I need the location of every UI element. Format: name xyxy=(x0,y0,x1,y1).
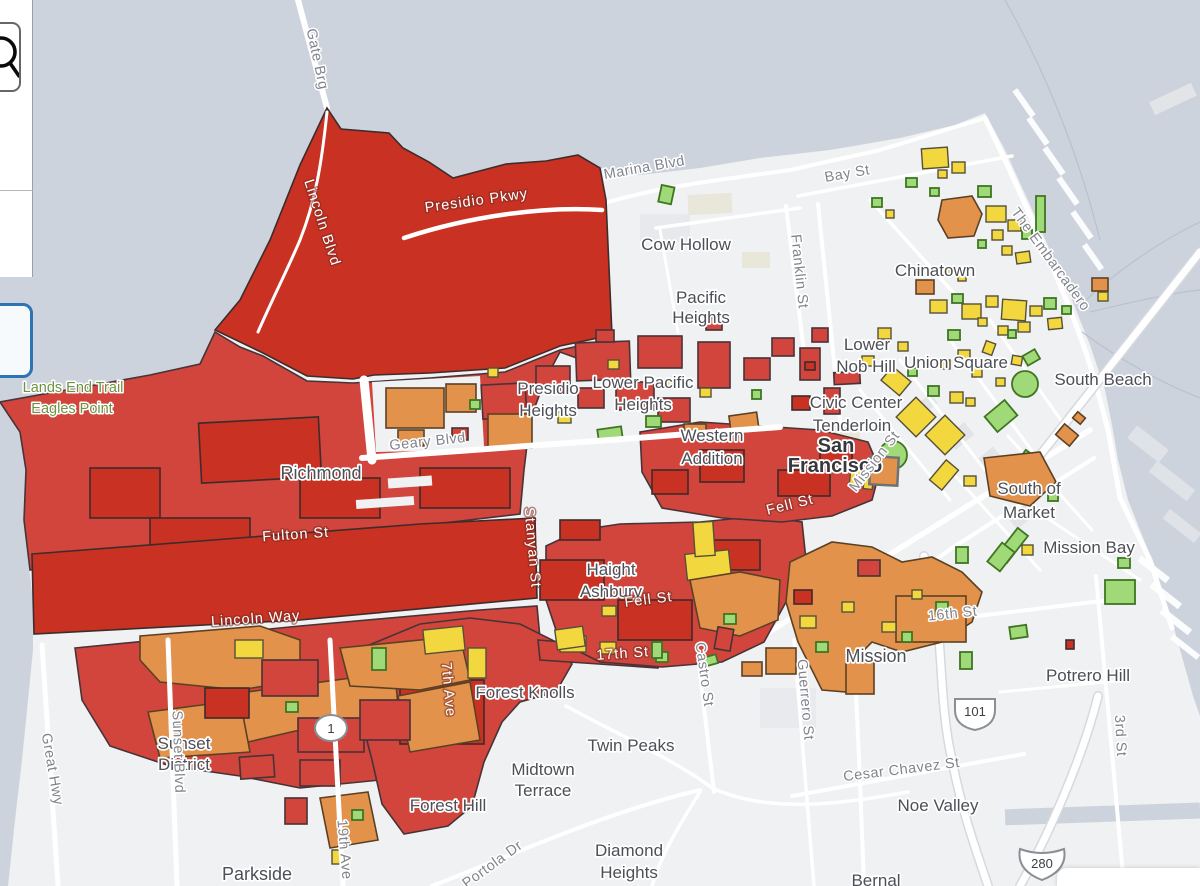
poi-label: Lands End Trail xyxy=(23,380,124,396)
street-label: 3rd St xyxy=(1111,715,1129,757)
neighborhood-label: Midtown xyxy=(511,760,574,779)
neighborhood-label: South of xyxy=(997,479,1061,498)
neighborhood-label: Cow Hollow xyxy=(641,235,731,254)
bottom-right-overlay-panel xyxy=(1057,868,1200,886)
neighborhood-label: Mission xyxy=(845,646,906,666)
street-label: Gate Brg xyxy=(303,27,332,91)
neighborhood-label: Market xyxy=(1003,503,1055,522)
neighborhood-label: Haight xyxy=(586,560,635,579)
sidebar-panel-lower xyxy=(0,190,33,277)
neighborhood-label: Heights xyxy=(672,308,730,327)
neighborhood-label: Heights xyxy=(600,863,658,882)
active-tool-button[interactable] xyxy=(0,303,33,378)
neighborhood-label: Richmond xyxy=(280,463,361,483)
neighborhood-label: Nob Hill xyxy=(836,357,896,376)
sidebar-panel xyxy=(0,0,33,190)
neighborhood-label: Pacific xyxy=(676,288,727,307)
neighborhood-label: Bernal xyxy=(851,871,900,886)
map-application: Gate Brg Lincoln Blvd Presidio Pkwy Mari… xyxy=(0,0,1200,886)
neighborhood-label: Tenderloin xyxy=(813,416,891,435)
svg-text:101: 101 xyxy=(964,704,986,719)
neighborhood-label: Addition xyxy=(681,449,742,468)
neighborhood-label: Lower xyxy=(844,335,891,354)
svg-text:1: 1 xyxy=(327,721,334,736)
neighborhood-label: Parkside xyxy=(222,864,292,884)
neighborhood-label: Heights xyxy=(519,401,577,420)
search-button[interactable] xyxy=(0,22,21,92)
route-1-shield: 1 xyxy=(315,715,347,741)
neighborhood-label: Presidio xyxy=(517,379,578,398)
neighborhood-label: Heights xyxy=(614,395,672,414)
neighborhood-label: Forest Hill xyxy=(410,796,487,815)
neighborhood-label: Mission Bay xyxy=(1043,538,1135,557)
poi-label: Eagles Point xyxy=(31,401,112,417)
neighborhood-label: Forest Knolls xyxy=(475,683,574,702)
neighborhood-label: Terrace xyxy=(515,781,572,800)
city-label: San xyxy=(818,435,855,457)
neighborhood-label: South Beach xyxy=(1054,370,1151,389)
neighborhood-label: Chinatown xyxy=(895,261,975,280)
neighborhood-label: Union Square xyxy=(904,353,1008,372)
neighborhood-label: Western xyxy=(681,426,744,445)
neighborhood-label: Diamond xyxy=(595,841,663,860)
magnifier-icon xyxy=(0,24,19,90)
svg-text:280: 280 xyxy=(1031,856,1053,871)
neighborhood-label: Civic Center xyxy=(810,393,903,412)
neighborhood-label: Twin Peaks xyxy=(588,736,675,755)
street-label: Sunset Blvd xyxy=(169,710,188,793)
neighborhood-label: Potrero Hill xyxy=(1046,666,1130,685)
neighborhood-label: Lower Pacific xyxy=(592,373,694,392)
map-canvas[interactable]: Gate Brg Lincoln Blvd Presidio Pkwy Mari… xyxy=(0,0,1200,886)
neighborhood-label: Noe Valley xyxy=(898,796,979,815)
